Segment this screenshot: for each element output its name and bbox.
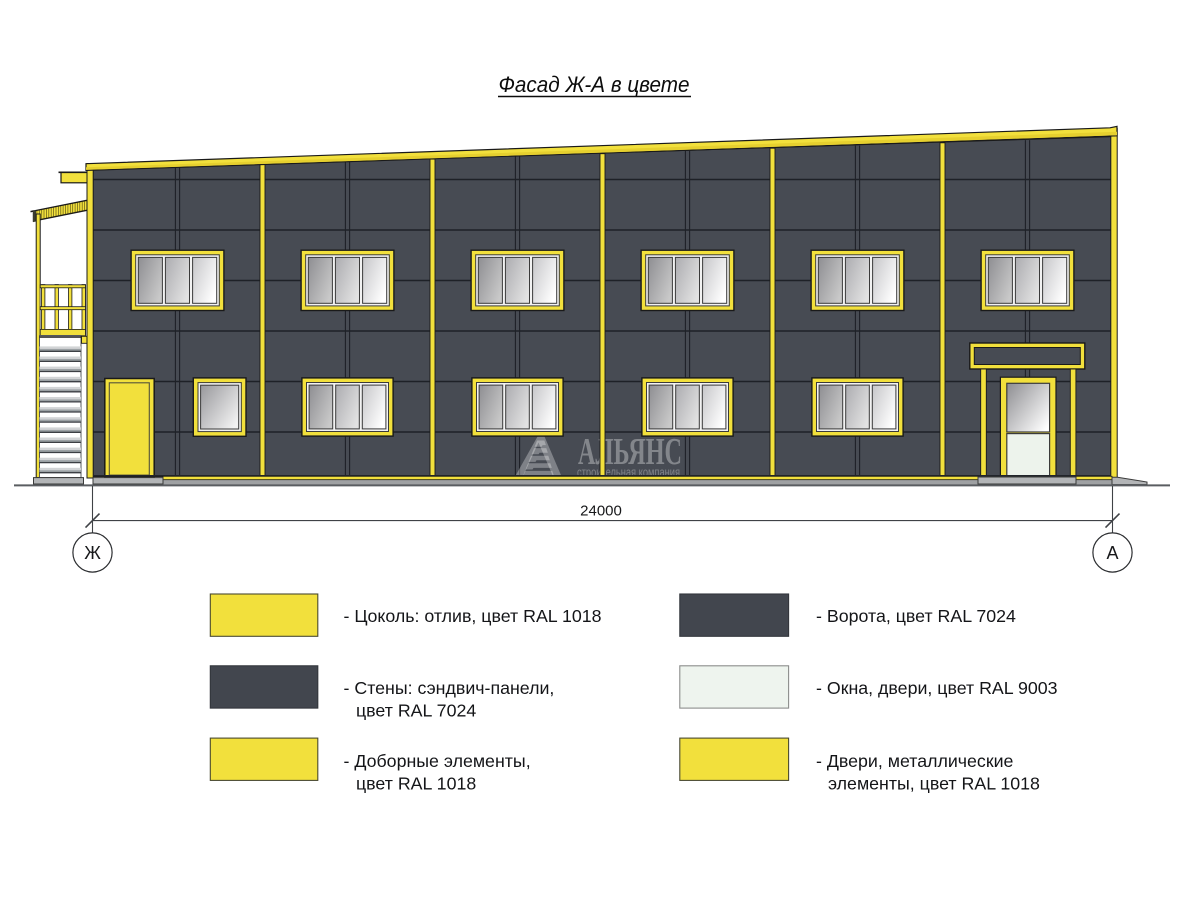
svg-text:- Ворота, цвет RAL 7024: - Ворота, цвет RAL 7024: [816, 606, 1016, 626]
svg-text:цвет RAL 1018: цвет RAL 1018: [356, 774, 476, 794]
svg-text:Ж: Ж: [84, 543, 101, 563]
svg-text:Фасад Ж-А в цвете: Фасад Ж-А в цвете: [499, 72, 690, 97]
svg-text:- Доборные элементы,: - Доборные элементы,: [344, 751, 531, 771]
svg-text:цвет RAL 7024: цвет RAL 7024: [356, 701, 476, 721]
svg-text:А: А: [1106, 543, 1118, 563]
svg-text:- Стены: сэндвич-панели,: - Стены: сэндвич-панели,: [344, 678, 555, 698]
svg-text:- Двери, металлические: - Двери, металлические: [816, 751, 1014, 771]
svg-text:24000: 24000: [580, 503, 622, 520]
svg-text:- Окна, двери, цвет RAL 9003: - Окна, двери, цвет RAL 9003: [816, 678, 1058, 698]
svg-text:- Цоколь: отлив, цвет RAL 1018: - Цоколь: отлив, цвет RAL 1018: [344, 606, 602, 626]
svg-text:элементы, цвет RAL 1018: элементы, цвет RAL 1018: [828, 774, 1040, 794]
